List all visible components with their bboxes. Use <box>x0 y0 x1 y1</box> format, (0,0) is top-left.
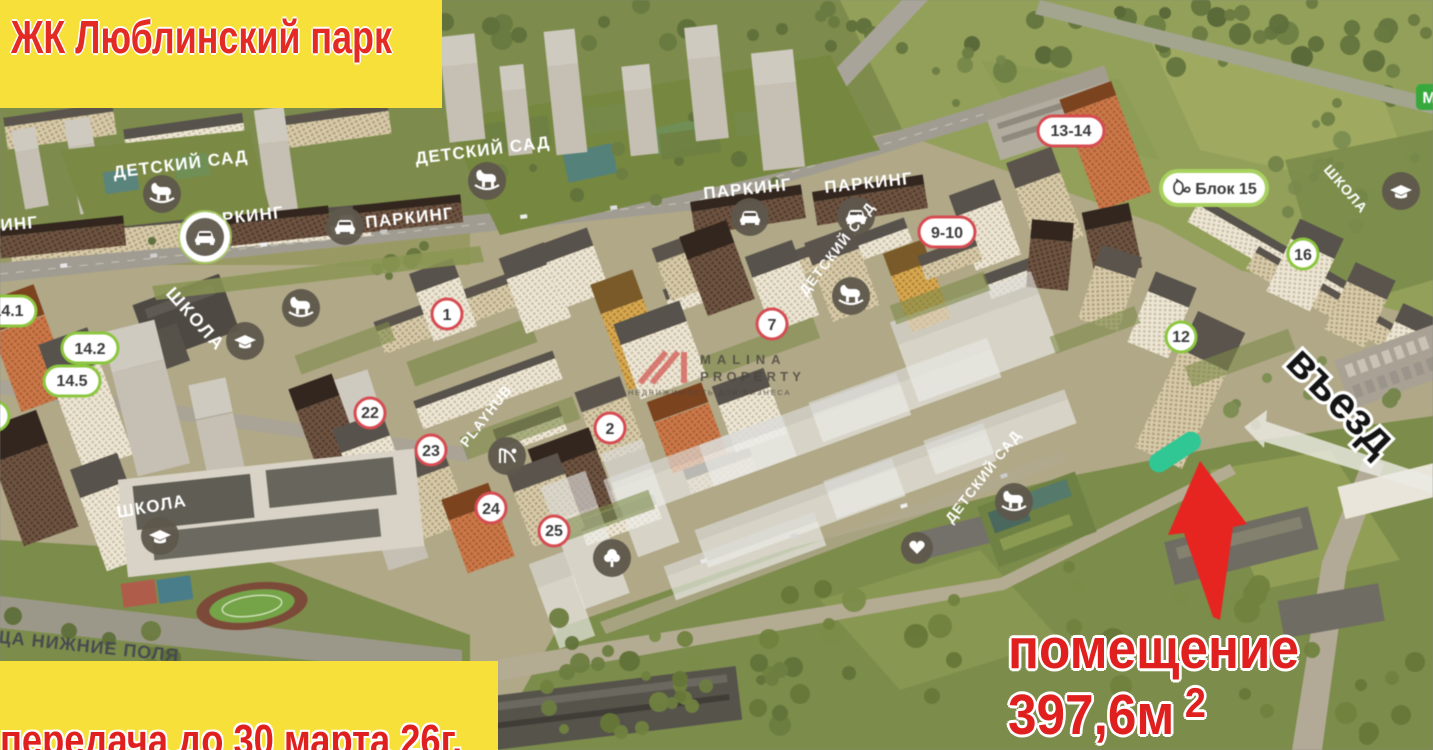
svg-text:НЕДВИЖИМОСТЬ ДЛЯ БИЗНЕСА: НЕДВИЖИМОСТЬ ДЛЯ БИЗНЕСА <box>628 388 791 397</box>
svg-text:23: 23 <box>422 443 440 460</box>
svg-text:14.2: 14.2 <box>74 341 105 358</box>
svg-text:22: 22 <box>361 405 379 422</box>
svg-text:12: 12 <box>1172 329 1190 346</box>
svg-text:7: 7 <box>768 317 777 334</box>
svg-text:14.5: 14.5 <box>56 373 87 390</box>
svg-text:25: 25 <box>545 523 563 540</box>
svg-text:14.1: 14.1 <box>0 303 24 320</box>
svg-text:Блок 15: Блок 15 <box>1195 181 1257 198</box>
svg-text:2: 2 <box>606 421 615 438</box>
svg-text:13-14: 13-14 <box>1051 123 1092 140</box>
svg-text:PROPERTY: PROPERTY <box>700 369 805 384</box>
svg-text:MALINA: MALINA <box>700 352 787 367</box>
svg-text:16: 16 <box>1294 247 1312 264</box>
svg-text:1: 1 <box>443 307 452 324</box>
svg-text:24: 24 <box>482 501 500 518</box>
svg-text:9-10: 9-10 <box>931 225 963 242</box>
svg-text:М: М <box>1422 90 1433 107</box>
